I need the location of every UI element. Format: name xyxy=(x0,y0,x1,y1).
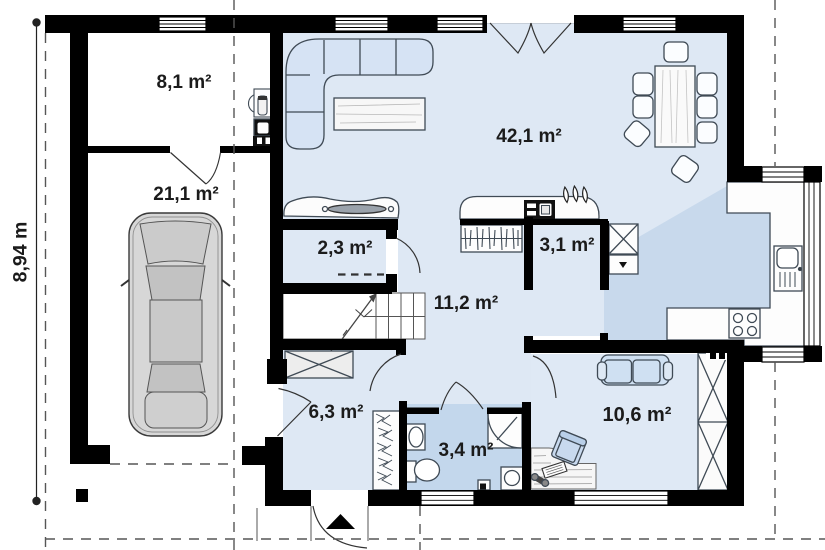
svg-text:42,1 m²: 42,1 m² xyxy=(496,126,561,147)
svg-text:3,4 m²: 3,4 m² xyxy=(439,440,494,461)
svg-text:10,6 m²: 10,6 m² xyxy=(603,404,672,426)
svg-text:11,2 m²: 11,2 m² xyxy=(434,293,498,314)
svg-text:3,1 m²: 3,1 m² xyxy=(540,235,595,256)
svg-text:2,3 m²: 2,3 m² xyxy=(318,238,373,259)
svg-text:8,94 m: 8,94 m xyxy=(10,222,32,283)
svg-text:8,1 m²: 8,1 m² xyxy=(157,72,212,93)
svg-text:21,1 m²: 21,1 m² xyxy=(153,184,218,205)
svg-text:6,3 m²: 6,3 m² xyxy=(309,402,364,423)
